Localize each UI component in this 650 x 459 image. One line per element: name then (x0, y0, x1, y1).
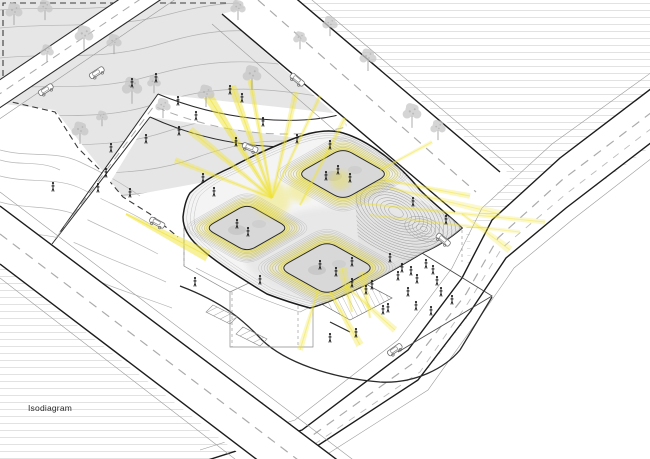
isodiagram-label: Isodiagram (28, 403, 72, 413)
isodiagram-stage: Isodiagram (0, 0, 650, 459)
site-axonometric-drawing: Isodiagram (0, 0, 650, 459)
